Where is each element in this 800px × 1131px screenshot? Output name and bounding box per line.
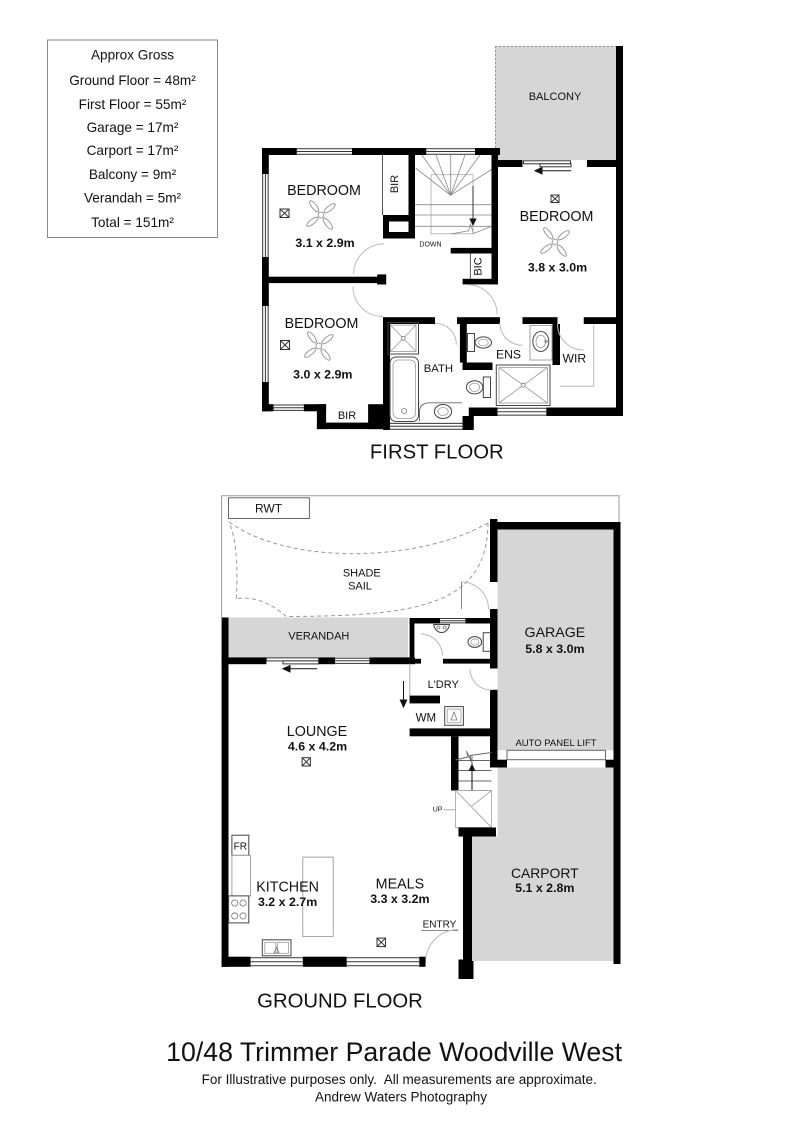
svg-text:BEDROOM: BEDROOM (287, 183, 361, 199)
svg-text:Balcony = 9m²: Balcony = 9m² (89, 167, 177, 182)
svg-text:GARAGE: GARAGE (525, 625, 586, 641)
svg-text:BEDROOM: BEDROOM (520, 209, 594, 225)
svg-text:FR: FR (234, 842, 247, 853)
svg-text:FIRST FLOOR: FIRST FLOOR (370, 441, 504, 463)
svg-text:WM: WM (416, 713, 436, 725)
svg-text:3.8 x 3.0m: 3.8 x 3.0m (528, 261, 587, 275)
svg-text:First Floor = 55m²: First Floor = 55m² (79, 97, 187, 112)
svg-text:AUTO PANEL LIFT: AUTO PANEL LIFT (515, 738, 596, 749)
svg-text:BIR: BIR (338, 410, 356, 422)
svg-text:For Illustrative purposes only: For Illustrative purposes only. All meas… (202, 1072, 597, 1087)
svg-text:DOWN: DOWN (419, 241, 441, 248)
svg-text:Verandah = 5m²: Verandah = 5m² (84, 191, 182, 206)
svg-text:MEALS: MEALS (376, 876, 424, 892)
svg-text:ENTRY: ENTRY (423, 920, 457, 931)
svg-text:BIR: BIR (389, 175, 401, 193)
svg-text:ENS: ENS (496, 347, 521, 361)
svg-text:SAIL: SAIL (348, 580, 372, 592)
svg-text:RWT: RWT (255, 502, 283, 516)
svg-text:Andrew Waters Photography: Andrew Waters Photography (315, 1089, 487, 1104)
svg-text:3.2 x 2.7m: 3.2 x 2.7m (258, 895, 317, 909)
svg-text:4.6 x 4.2m: 4.6 x 4.2m (288, 739, 347, 753)
svg-text:GROUND FLOOR: GROUND FLOOR (257, 991, 423, 1013)
svg-text:Ground Floor = 48m²: Ground Floor = 48m² (69, 73, 196, 88)
svg-text:Carport = 17m²: Carport = 17m² (87, 143, 179, 158)
svg-text:LOUNGE: LOUNGE (287, 724, 347, 740)
svg-text:5.1 x 2.8m: 5.1 x 2.8m (515, 881, 574, 895)
svg-text:UP: UP (433, 807, 443, 814)
svg-text:KITCHEN: KITCHEN (256, 879, 319, 895)
svg-text:Garage = 17m²: Garage = 17m² (87, 120, 179, 135)
svg-text:CARPORT: CARPORT (511, 865, 579, 881)
svg-text:WIR: WIR (563, 351, 587, 365)
svg-text:Total = 151m²: Total = 151m² (91, 215, 174, 230)
svg-text:5.8 x 3.0m: 5.8 x 3.0m (525, 642, 584, 656)
svg-text:BEDROOM: BEDROOM (285, 316, 359, 332)
svg-text:L'DRY: L'DRY (428, 679, 460, 691)
svg-text:BIC: BIC (473, 257, 485, 275)
svg-text:SHADE: SHADE (343, 568, 381, 580)
svg-text:BATH: BATH (424, 363, 453, 375)
svg-text:3.0 x 2.9m: 3.0 x 2.9m (293, 368, 352, 382)
svg-text:3.3 x 3.2m: 3.3 x 3.2m (370, 892, 429, 906)
svg-text:3.1 x 2.9m: 3.1 x 2.9m (295, 236, 354, 250)
svg-text:BALCONY: BALCONY (529, 91, 582, 103)
svg-text:10/48 Trimmer Parade Woodville: 10/48 Trimmer Parade Woodville West (166, 1037, 622, 1067)
svg-text:VERANDAH: VERANDAH (288, 631, 349, 643)
svg-text:Approx Gross: Approx Gross (91, 48, 174, 63)
